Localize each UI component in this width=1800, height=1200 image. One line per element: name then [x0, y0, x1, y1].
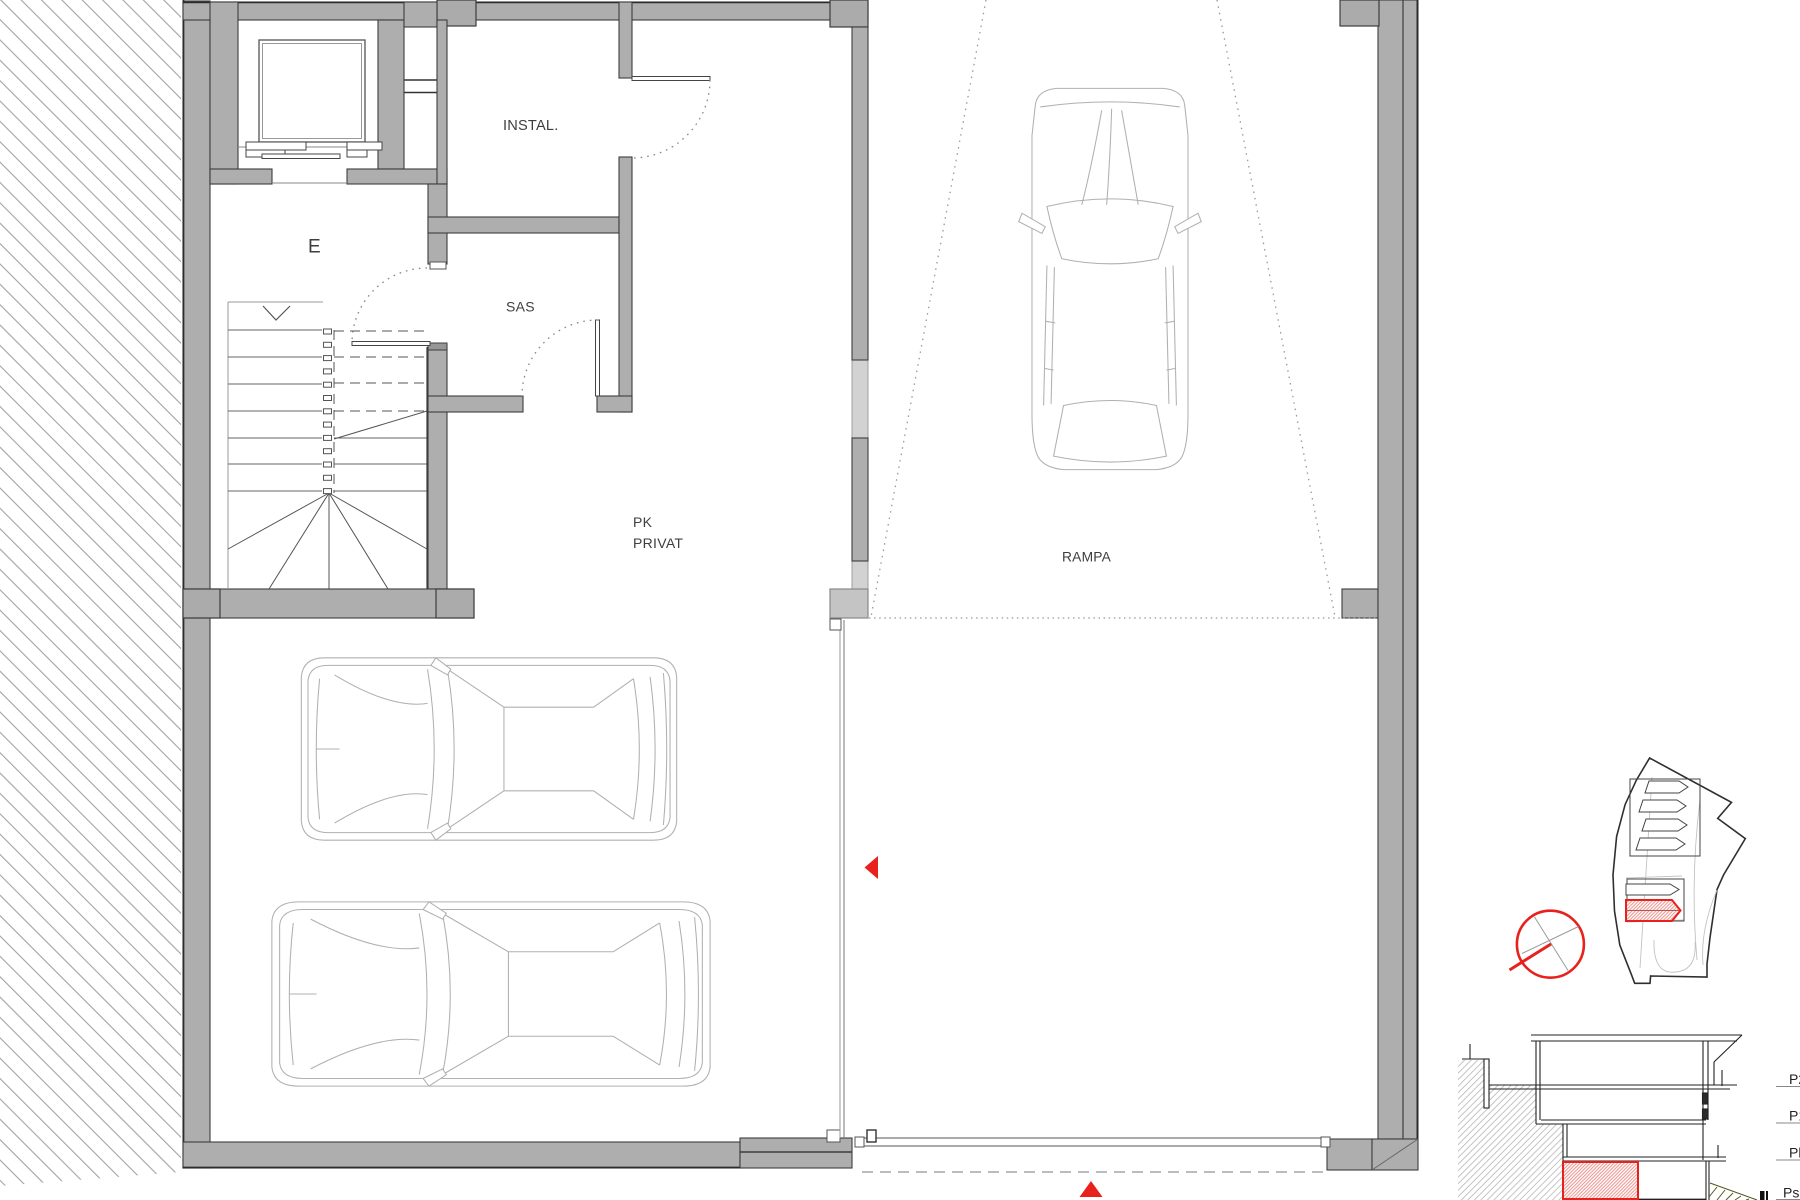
- svg-text:Pb: Pb: [1789, 1145, 1800, 1161]
- svg-text:PK: PK: [633, 514, 653, 530]
- svg-text:Ps: Ps: [1783, 1185, 1799, 1200]
- svg-text:INSTAL.: INSTAL.: [503, 118, 558, 134]
- svg-text:SAS: SAS: [506, 299, 535, 315]
- svg-text:RAMPA: RAMPA: [1062, 550, 1112, 565]
- svg-text:PRIVAT: PRIVAT: [633, 535, 683, 551]
- svg-text:P1: P1: [1789, 1108, 1800, 1124]
- svg-text:E: E: [308, 237, 321, 258]
- svg-text:P2: P2: [1789, 1071, 1800, 1087]
